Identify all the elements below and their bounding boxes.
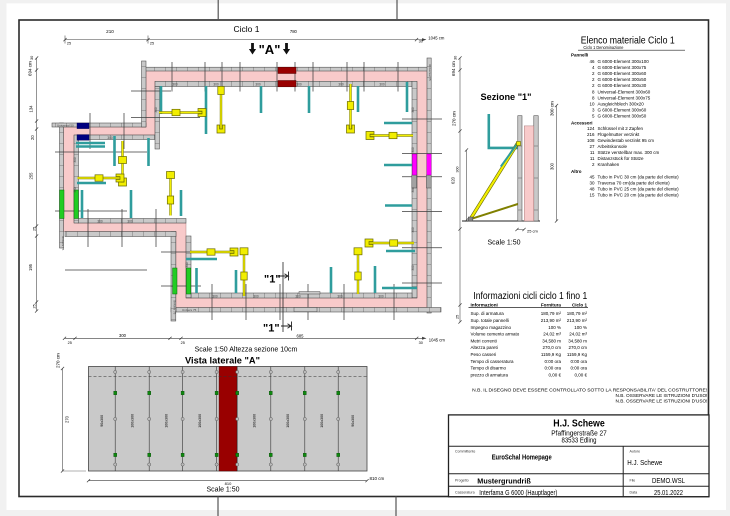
svg-text:Altezza pareti: Altezza pareti [471, 345, 498, 350]
svg-text:Tubo in PVC 20 cm (da parte de: Tubo in PVC 20 cm (da parte del cliente) [598, 193, 680, 198]
svg-text:100x300: 100x300 [286, 414, 290, 428]
svg-text:Tempo di disarmo: Tempo di disarmo [471, 366, 507, 371]
svg-text:Altro: Altro [571, 169, 582, 174]
svg-text:30: 30 [419, 40, 423, 44]
svg-text:G 6000-Element 300x75: G 6000-Element 300x75 [598, 65, 647, 70]
svg-text:Fornitura: Fornitura [541, 302, 562, 307]
svg-text:694 cm: 694 cm [28, 61, 33, 76]
svg-text:Ciclo 1: Ciclo 1 [572, 302, 588, 307]
svg-text:213,90 m²: 213,90 m² [567, 318, 588, 323]
svg-text:27: 27 [589, 144, 595, 149]
svg-text:Stütze verstellbar max. 300 cm: Stütze verstellbar max. 300 cm [598, 150, 660, 155]
svg-text:25: 25 [150, 41, 154, 45]
svg-text:0:00 ora: 0:00 ora [544, 359, 561, 364]
svg-text:20: 20 [30, 135, 35, 140]
svg-text:180,79 m²: 180,79 m² [567, 311, 588, 316]
svg-text:Univers 75: Univers 75 [182, 308, 197, 312]
svg-text:620: 620 [451, 176, 456, 184]
svg-text:Distanzstück für Stütze: Distanzstück für Stütze [598, 156, 645, 161]
svg-text:1045 cm: 1045 cm [429, 338, 446, 343]
svg-text:Univers 75: Univers 75 [61, 236, 65, 251]
svg-text:25: 25 [33, 304, 37, 308]
svg-text:300: 300 [73, 157, 77, 163]
svg-text:Universal-Element 300x60: Universal-Element 300x60 [598, 89, 651, 94]
svg-text:Accessori: Accessori [571, 120, 593, 125]
svg-text:300: 300 [550, 162, 555, 170]
svg-text:Universal 75: Universal 75 [428, 64, 432, 81]
svg-text:25: 25 [67, 41, 71, 45]
svg-text:195: 195 [28, 263, 33, 271]
svg-text:30: 30 [589, 181, 595, 186]
svg-text:685: 685 [297, 333, 305, 338]
svg-text:300 cm: 300 cm [550, 101, 555, 116]
svg-text:G 6000-Element 300x50: G 6000-Element 300x50 [598, 114, 647, 119]
svg-text:300: 300 [127, 220, 133, 224]
svg-text:Pannelli: Pannelli [571, 53, 588, 58]
svg-text:0:00 ora: 0:00 ora [570, 366, 587, 371]
svg-text:25: 25 [68, 341, 72, 345]
svg-text:30: 30 [454, 56, 458, 60]
svg-text:Impegno magazzino: Impegno magazzino [471, 325, 512, 330]
svg-text:34,580 m: 34,580 m [542, 338, 561, 343]
svg-text:0,00 €: 0,00 € [548, 372, 561, 377]
svg-text:Vista laterale "A": Vista laterale "A" [185, 356, 260, 367]
svg-text:810: 810 [225, 481, 232, 486]
svg-text:11: 11 [590, 150, 595, 155]
svg-text:Progetto: Progetto [455, 478, 469, 482]
svg-text:"1": "1" [263, 323, 280, 335]
svg-text:300: 300 [338, 82, 344, 86]
svg-text:300: 300 [456, 167, 460, 173]
svg-text:Traversa 70 cm(da parte del cl: Traversa 70 cm(da parte del cliente) [598, 181, 671, 186]
svg-text:300: 300 [154, 107, 158, 113]
svg-text:45: 45 [589, 175, 595, 180]
svg-text:108: 108 [587, 138, 595, 143]
svg-text:25: 25 [181, 341, 185, 345]
svg-text:Data: Data [630, 491, 638, 495]
svg-text:25.01.2022: 25.01.2022 [654, 490, 683, 497]
svg-text:180,79 m²: 180,79 m² [541, 311, 562, 316]
svg-text:N.B. OSSERVARE LE ISTRUZIONI D: N.B. OSSERVARE LE ISTRUZIONI D'USO! [616, 398, 708, 403]
svg-text:Peso casseri: Peso casseri [471, 352, 497, 357]
svg-text:25: 25 [33, 227, 37, 231]
svg-text:300: 300 [185, 262, 189, 268]
svg-text:300: 300 [97, 220, 103, 224]
svg-text:G 6000-Element 300x50: G 6000-Element 300x50 [598, 77, 647, 82]
svg-text:Schlüssel mit 2 Zapfen: Schlüssel mit 2 Zapfen [598, 126, 644, 131]
svg-text:300: 300 [213, 82, 219, 86]
svg-text:30: 30 [30, 56, 34, 60]
svg-text:Autore: Autore [630, 449, 641, 453]
svg-text:300: 300 [255, 82, 261, 86]
svg-text:270: 270 [65, 415, 70, 423]
svg-text:100 %: 100 % [574, 325, 587, 330]
svg-text:124: 124 [587, 126, 595, 131]
svg-text:300: 300 [295, 294, 301, 298]
svg-text:46: 46 [589, 59, 595, 64]
svg-text:210: 210 [106, 29, 114, 34]
svg-text:90x300: 90x300 [100, 415, 104, 427]
svg-text:100x300: 100x300 [320, 414, 324, 428]
svg-text:EuroSchal Homepage: EuroSchal Homepage [492, 454, 552, 461]
svg-text:100x300: 100x300 [131, 414, 135, 428]
svg-text:Sup. totale pannelli: Sup. totale pannelli [471, 318, 509, 323]
svg-text:Volume cemento armato: Volume cemento armato [471, 332, 520, 337]
svg-text:N.B. IL DISEGNO DEVE ESSERE CO: N.B. IL DISEGNO DEVE ESSERE CONTROLLATO … [472, 387, 707, 392]
svg-text:Interfama G 6000 (Hauptlager): Interfama G 6000 (Hauptlager) [479, 490, 557, 497]
svg-text:10: 10 [589, 101, 595, 106]
svg-text:30: 30 [419, 341, 423, 345]
svg-text:300: 300 [107, 136, 113, 140]
svg-text:Universal 50: Universal 50 [57, 124, 74, 128]
svg-text:G 6000-Element 300x60: G 6000-Element 300x60 [598, 71, 647, 76]
svg-text:213,90 m²: 213,90 m² [541, 318, 562, 323]
svg-text:1159,9 Kg: 1159,9 Kg [541, 352, 562, 357]
svg-text:Scale 1:50 Altezza sezione 1: Scale 1:50 Altezza sezione 10cm [195, 347, 298, 354]
svg-text:Ciclo 1: Ciclo 1 [234, 24, 260, 34]
svg-text:90x300: 90x300 [351, 415, 355, 427]
svg-text:25 cm: 25 cm [527, 229, 539, 234]
svg-text:300: 300 [73, 187, 77, 193]
svg-text:1045 cm: 1045 cm [428, 35, 445, 40]
svg-text:prezzo di armatura: prezzo di armatura [471, 372, 509, 377]
svg-text:11: 11 [590, 156, 595, 161]
svg-text:100x300: 100x300 [252, 414, 256, 428]
svg-text:1159,9 Kg: 1159,9 Kg [567, 352, 588, 357]
svg-text:N.B. OSSERVARE LE ISTRUZIONI D: N.B. OSSERVARE LE ISTRUZIONI D'USO! [616, 393, 708, 398]
svg-text:H.J. Schewe: H.J. Schewe [627, 460, 662, 467]
svg-text:Casseratura: Casseratura [455, 491, 475, 495]
svg-text:300: 300 [411, 147, 415, 153]
svg-text:Gewindestab verzinkt 95 cm: Gewindestab verzinkt 95 cm [598, 138, 655, 143]
svg-text:300: 300 [253, 294, 259, 298]
svg-text:24,02 m³: 24,02 m³ [543, 332, 561, 337]
svg-text:"A": "A" [259, 42, 281, 57]
svg-text:270 cm: 270 cm [56, 353, 61, 368]
svg-text:Ciclo 1 Denominazione: Ciclo 1 Denominazione [583, 45, 624, 50]
svg-text:DEMO.WSL: DEMO.WSL [652, 478, 685, 485]
svg-text:300: 300 [378, 294, 384, 298]
svg-text:100x300: 100x300 [198, 414, 202, 428]
svg-text:Flügelmutter verzinkt: Flügelmutter verzinkt [598, 132, 641, 137]
svg-text:Metri correnti: Metri correnti [471, 338, 497, 343]
svg-text:Sup. di armatura: Sup. di armatura [471, 311, 505, 316]
svg-text:Informazioni cicli ciclo 1 fi: Informazioni cicli ciclo 1 fino 1 [473, 291, 587, 302]
svg-text:270 cm: 270 cm [452, 111, 457, 126]
svg-text:Committente: Committente [455, 449, 475, 453]
svg-text:G 6000-Element 300x30: G 6000-Element 300x30 [598, 83, 647, 88]
svg-text:300: 300 [119, 333, 127, 338]
svg-text:300: 300 [411, 107, 415, 113]
svg-text:300: 300 [411, 227, 415, 233]
svg-text:"1": "1" [264, 274, 281, 286]
svg-text:Scale 1:50: Scale 1:50 [206, 487, 239, 494]
svg-text:216: 216 [587, 132, 595, 137]
svg-text:34,580 m: 34,580 m [568, 338, 587, 343]
svg-text:300: 300 [212, 294, 218, 298]
svg-text:Tubo in PVC 30 cm (da parte de: Tubo in PVC 30 cm (da parte del cliente) [598, 175, 680, 180]
svg-text:Kranhaken: Kranhaken [598, 162, 620, 167]
svg-text:270,0 cm: 270,0 cm [568, 345, 587, 350]
svg-text:0:00 ora: 0:00 ora [570, 359, 587, 364]
svg-text:300: 300 [411, 265, 415, 271]
svg-text:25: 25 [456, 315, 460, 319]
svg-text:Tempo di casseratura: Tempo di casseratura [471, 359, 515, 364]
svg-text:G 6000-Element 300x60: G 6000-Element 300x60 [598, 107, 647, 112]
svg-text:300: 300 [172, 82, 178, 86]
svg-text:Arbeitskonsole: Arbeitskonsole [598, 144, 628, 149]
svg-text:100 %: 100 % [548, 325, 561, 330]
svg-text:Scale 1:50: Scale 1:50 [487, 240, 520, 247]
svg-text:Mustergrundriß: Mustergrundriß [477, 479, 531, 486]
svg-text:134: 134 [29, 105, 34, 113]
svg-text:0:00 ora: 0:00 ora [544, 366, 561, 371]
svg-text:270,0 cm: 270,0 cm [542, 345, 561, 350]
svg-text:Univers 75: Univers 75 [172, 300, 176, 315]
svg-text:Informazioni: Informazioni [471, 302, 498, 307]
svg-text:255: 255 [29, 172, 34, 180]
svg-text:Sezione "1": Sezione "1" [481, 92, 532, 103]
svg-text:780: 780 [290, 29, 298, 34]
svg-text:300: 300 [379, 82, 385, 86]
svg-text:694 cm: 694 cm [451, 61, 456, 76]
svg-text:Ausgleichblech 300x20: Ausgleichblech 300x20 [598, 101, 645, 106]
svg-text:300: 300 [296, 82, 302, 86]
svg-text:0,00 €: 0,00 € [574, 372, 587, 377]
svg-text:48: 48 [589, 187, 595, 192]
svg-text:300: 300 [337, 294, 343, 298]
svg-text:83533 Edling: 83533 Edling [562, 435, 597, 444]
svg-text:24,02 m³: 24,02 m³ [569, 332, 587, 337]
svg-text:Tubo in PVC 25 cm (da parte de: Tubo in PVC 25 cm (da parte del cliente) [598, 187, 680, 192]
svg-text:File: File [630, 478, 636, 482]
svg-text:100x300: 100x300 [164, 414, 168, 428]
svg-text:810 cm: 810 cm [370, 476, 385, 481]
svg-text:300: 300 [411, 187, 415, 193]
svg-text:Universal-Element 300x75: Universal-Element 300x75 [598, 95, 651, 100]
svg-text:15: 15 [589, 193, 595, 198]
svg-text:G 6000-Element 300x100: G 6000-Element 300x100 [598, 59, 650, 64]
